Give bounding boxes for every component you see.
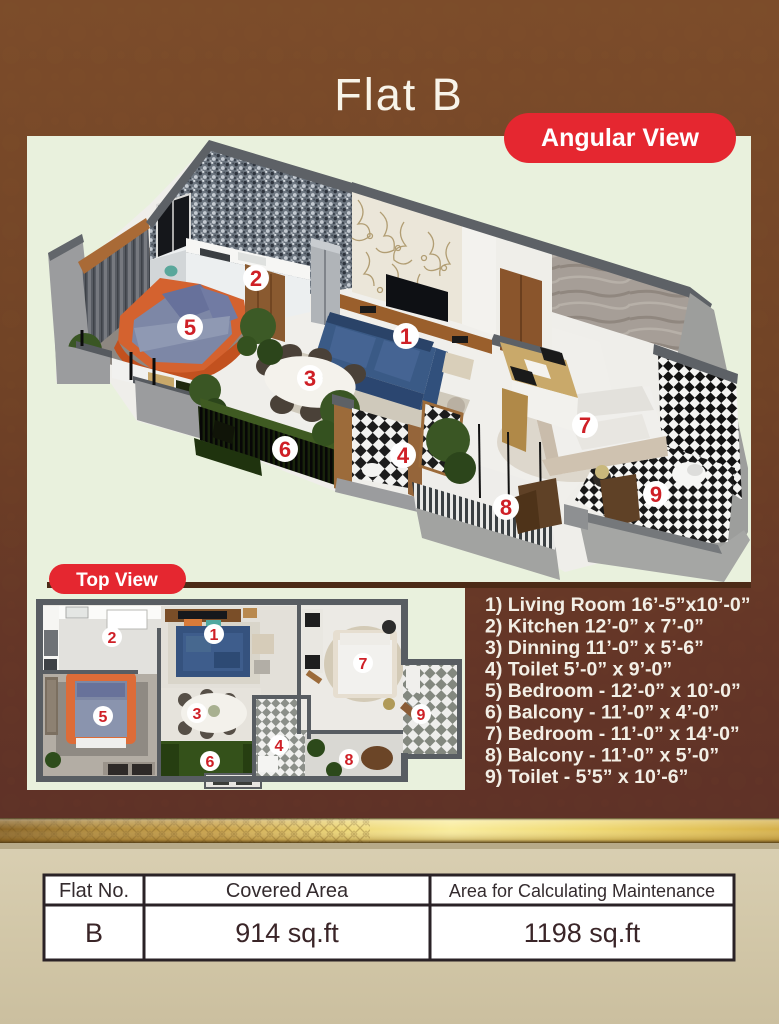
svg-text:7) Bedroom - 11’-0” x 14’-0”: 7) Bedroom - 11’-0” x 14’-0” — [485, 723, 740, 745]
svg-text:9) Toilet - 5’5” x 10’-6”: 9) Toilet - 5’5” x 10’-6” — [485, 766, 688, 788]
svg-text:2: 2 — [250, 266, 262, 291]
svg-text:1: 1 — [400, 324, 412, 349]
svg-text:6: 6 — [206, 754, 215, 771]
svg-text:1198 sq.ft: 1198 sq.ft — [524, 918, 641, 948]
svg-text:6: 6 — [279, 437, 291, 462]
svg-text:5: 5 — [184, 315, 196, 340]
svg-text:2) Kitchen 12’-0” x 7’-0”: 2) Kitchen 12’-0” x 7’-0” — [485, 616, 704, 638]
svg-text:Flat No.: Flat No. — [59, 880, 129, 902]
svg-text:7: 7 — [579, 413, 591, 438]
svg-text:3: 3 — [304, 366, 316, 391]
svg-text:9: 9 — [417, 707, 426, 724]
svg-text:4: 4 — [275, 738, 284, 755]
svg-text:B: B — [85, 918, 103, 948]
svg-text:8) Balcony - 11’-0” x 5’-0”: 8) Balcony - 11’-0” x 5’-0” — [485, 745, 719, 767]
svg-text:6) Balcony - 11’-0” x 4’-0”: 6) Balcony - 11’-0” x 4’-0” — [485, 702, 719, 724]
svg-text:Top View: Top View — [76, 570, 158, 591]
svg-text:914 sq.ft: 914 sq.ft — [235, 918, 339, 948]
svg-text:2: 2 — [108, 630, 117, 647]
svg-text:4: 4 — [397, 443, 410, 468]
svg-text:3: 3 — [193, 706, 202, 723]
svg-text:1) Living Room 16’-5”x10’-0”: 1) Living Room 16’-5”x10’-0” — [485, 594, 751, 616]
svg-text:3) Dinning 11’-0” x 5’-6”: 3) Dinning 11’-0” x 5’-6” — [485, 637, 704, 659]
svg-text:Angular View: Angular View — [541, 124, 699, 152]
svg-text:8: 8 — [345, 752, 354, 769]
svg-text:8: 8 — [500, 495, 512, 520]
svg-text:Covered Area: Covered Area — [226, 880, 349, 902]
svg-text:5) Bedroom - 12’-0” x 10’-0”: 5) Bedroom - 12’-0” x 10’-0” — [485, 680, 741, 702]
svg-text:1: 1 — [210, 627, 219, 644]
svg-text:9: 9 — [650, 482, 662, 507]
svg-text:4) Toilet 5’-0” x 9’-0”: 4) Toilet 5’-0” x 9’-0” — [485, 659, 672, 681]
svg-text:7: 7 — [359, 656, 368, 673]
svg-text:5: 5 — [99, 709, 108, 726]
svg-text:Area for Calculating Maintenan: Area for Calculating Maintenance — [449, 881, 715, 901]
svg-text:Flat B: Flat B — [334, 69, 464, 120]
